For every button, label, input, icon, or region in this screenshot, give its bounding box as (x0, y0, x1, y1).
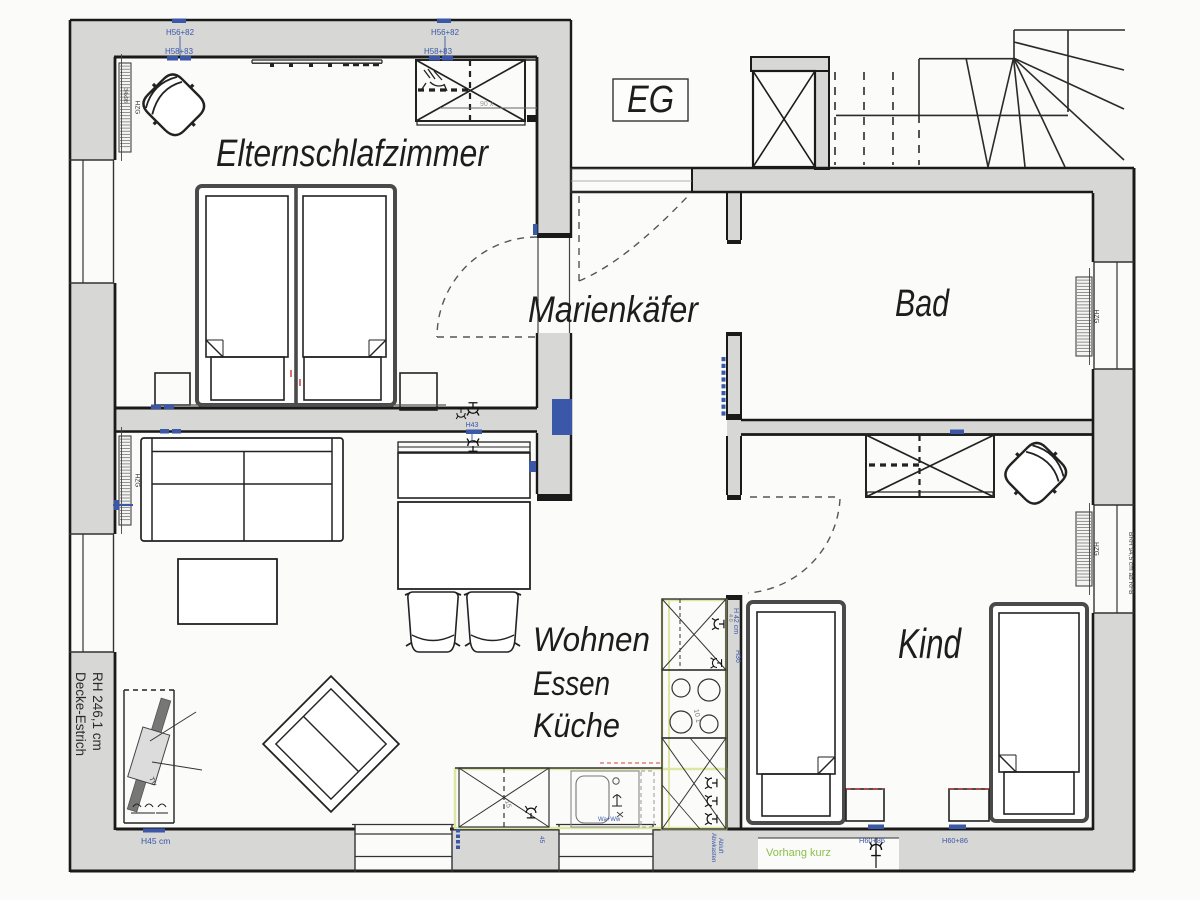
svg-text:Kind: Kind (898, 620, 962, 667)
svg-text:Decke-Estrich: Decke-Estrich (73, 672, 88, 756)
svg-text:H58+83: H58+83 (424, 47, 453, 56)
svg-text:Essen: Essen (533, 665, 610, 703)
svg-text:RH 246,1 cm: RH 246,1 cm (90, 672, 105, 751)
svg-text:Abwkasten: Abwkasten (710, 833, 716, 862)
svg-text:Bad: Bad (895, 283, 950, 325)
svg-text:45: 45 (538, 836, 545, 844)
svg-text:H58+83: H58+83 (165, 47, 194, 56)
svg-text:Küche: Küche (533, 707, 620, 745)
svg-text:Abluft: Abluft (717, 838, 723, 854)
svg-text:BRH 94,5 cm ab RFB: BRH 94,5 cm ab RFB (1127, 532, 1134, 595)
svg-text:H60+86: H60+86 (859, 836, 885, 845)
svg-text:H60+86: H60+86 (942, 836, 968, 845)
svg-text:HZG: HZG (1093, 310, 1100, 324)
svg-text:H56+82: H56+82 (431, 28, 460, 37)
svg-text:Marienkäfer: Marienkäfer (528, 289, 699, 330)
svg-text:H45 cm: H45 cm (141, 836, 170, 846)
svg-text:H56+82: H56+82 (166, 28, 195, 37)
svg-text:HZG: HZG (1093, 542, 1100, 556)
svg-text:Wohnen: Wohnen (533, 621, 650, 659)
svg-text:4 0: 4 0 (727, 614, 733, 622)
svg-text:HZG: HZG (134, 101, 141, 115)
svg-text:H43: H43 (466, 422, 479, 429)
svg-text:90 x: 90 x (480, 101, 494, 108)
svg-text:HZG: HZG (134, 474, 141, 488)
svg-text:EG: EG (627, 79, 674, 121)
svg-text:Wa+Ww: Wa+Ww (598, 817, 621, 823)
svg-text:Elternschlafzimmer: Elternschlafzimmer (216, 133, 489, 175)
svg-text:H36: H36 (734, 650, 741, 663)
svg-text:Vorhang kurz: Vorhang kurz (766, 847, 831, 859)
svg-text:34x98: 34x98 (122, 88, 128, 103)
